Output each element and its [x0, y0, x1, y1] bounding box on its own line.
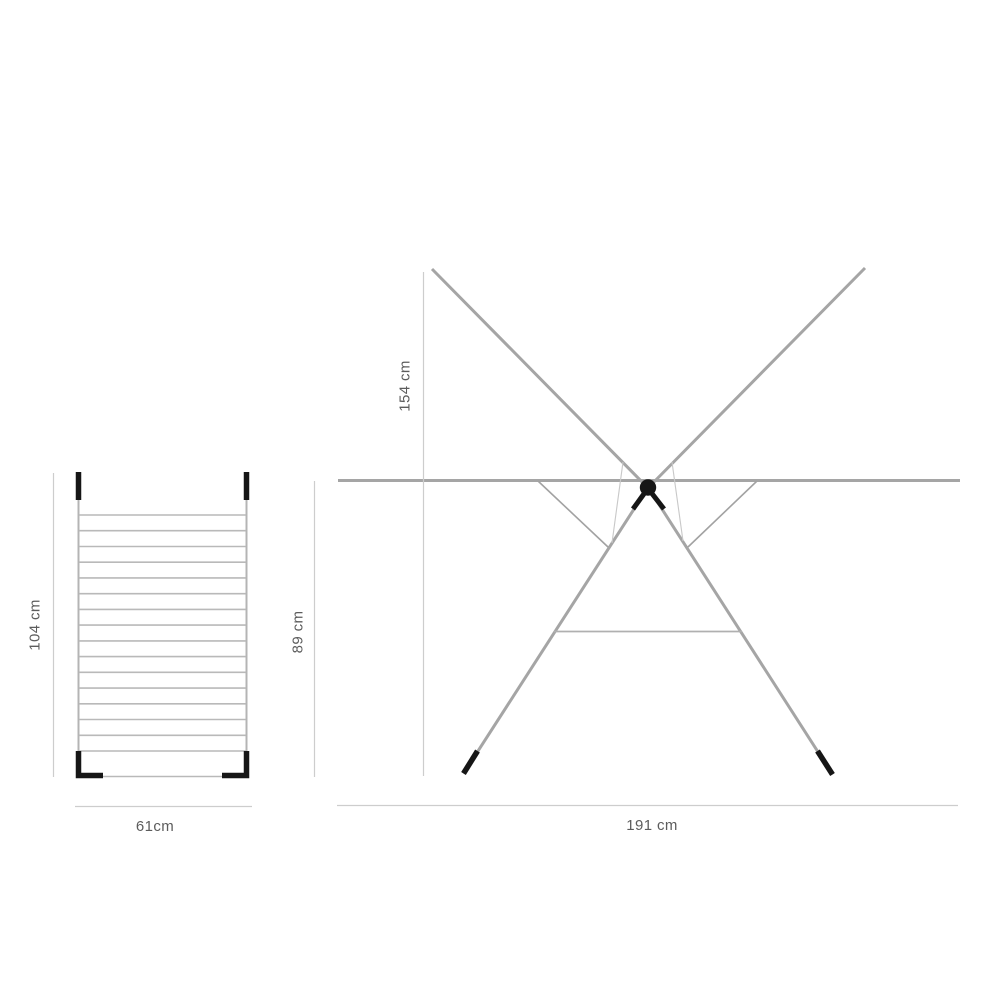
side-view-foot-right — [818, 751, 833, 775]
top-view-rungs — [79, 515, 246, 751]
diagram-canvas: 104 cm 61cm — [0, 0, 1000, 1000]
side-view-arm-left — [432, 269, 649, 489]
dimension-label-191: 191 cm — [626, 817, 678, 834]
side-view-arm-right — [647, 268, 865, 489]
dimension-label-61: 61cm — [136, 818, 174, 835]
top-view-corner-left — [79, 751, 104, 776]
side-view-leg-right — [651, 492, 833, 775]
top-view-diagram: 104 cm 61cm — [26, 472, 252, 835]
dimension-label-154: 154 cm — [396, 360, 413, 412]
dimension-label-89: 89 cm — [289, 611, 306, 654]
dimension-label-104: 104 cm — [26, 599, 43, 651]
side-view-diagram: 154 cm 89 cm 191 cm — [289, 268, 960, 834]
side-view-foot-left — [464, 751, 478, 774]
drying-rack-dimension-diagram: 104 cm 61cm — [0, 0, 1000, 1000]
side-view-wire-right — [688, 481, 757, 547]
side-view-wire-left — [538, 481, 608, 547]
top-view-corner-right — [222, 751, 247, 776]
side-view-hub-joint — [640, 479, 656, 495]
side-view-leg-left — [464, 492, 646, 774]
